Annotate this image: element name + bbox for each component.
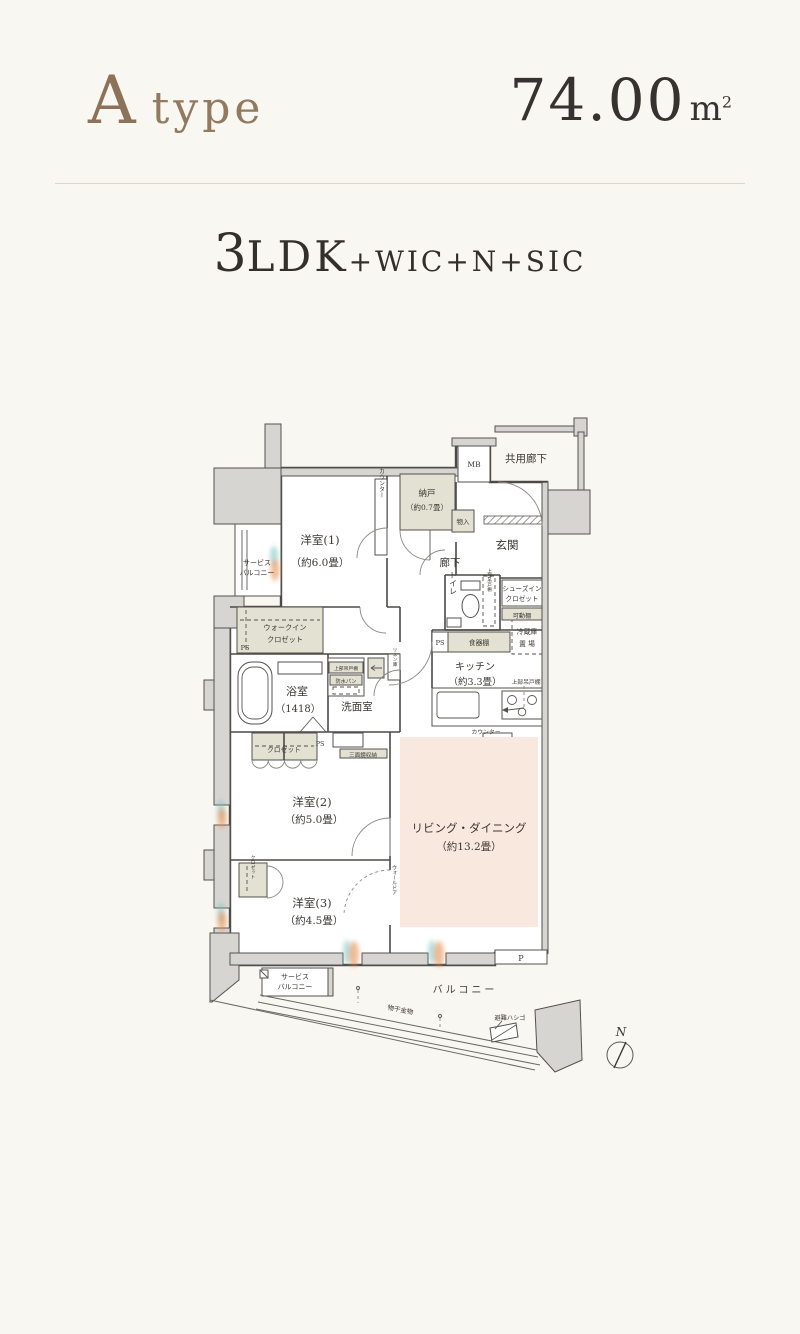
label-upper-cabinet-kitchen: 上部吊戸棚 [512, 678, 541, 686]
label-storage-room: 納戸 [418, 488, 435, 499]
label-living-dining-size: （約13.2畳） [436, 840, 501, 853]
label-closet-bedroom2: クロゼット [267, 745, 301, 754]
label-dish-cabinet: 食器棚 [469, 638, 490, 647]
label-kitchen: キッチン [455, 661, 495, 673]
label-bathroom-size: （1418） [275, 703, 320, 715]
label-bedroom3-size: （約4.5畳） [285, 914, 344, 927]
label-ps-kitchen: PS [436, 639, 445, 647]
type-initial: A [88, 62, 138, 139]
layout-extras: +WIC+N+SIC [349, 245, 587, 278]
label-waterproof-pan: 防水パン [335, 677, 356, 685]
layout-number: 3 [214, 224, 247, 284]
label-kitchen-size: （約3.3畳） [448, 676, 501, 688]
toilet-tank [461, 581, 480, 590]
stove [502, 691, 542, 719]
label-sic-1: シューズイン [502, 584, 542, 593]
label-hallway: 廊下 [440, 556, 461, 569]
label-living-dining: リビング・ダイニング [412, 821, 527, 835]
label-sb-top-2: バルコニー [240, 569, 275, 577]
label-storage-room-size: （約0.7畳） [406, 502, 448, 512]
balcony-area [210, 950, 547, 1070]
floor-plan: N 共用廊下 MB 納戸 （約0.7畳） 物入 カウンター 洋室(1) （約6.… [150, 380, 670, 1120]
label-bedroom1-size: （約6.0畳） [291, 556, 350, 569]
label-bathroom: 浴室 [286, 684, 308, 698]
label-ps-left: PS [241, 644, 250, 652]
label-bedroom1: 洋室(1) [300, 533, 339, 547]
label-upper-cabinet-toilet: 上部吊戸棚 [487, 568, 492, 593]
layout-summary: 3LDK+WIC+N+SIC [0, 224, 800, 284]
label-mb: MB [467, 460, 481, 469]
compass: N [607, 1025, 633, 1068]
label-washroom: 洗面室 [341, 700, 373, 713]
north-label: N [615, 1025, 627, 1039]
entrance-threshold-hatch [484, 516, 542, 524]
label-bedroom2: 洋室(2) [292, 795, 331, 809]
label-fridge-2: 置 場 [519, 639, 535, 648]
label-common-corridor: 共用廊下 [505, 452, 547, 465]
label-fridge-1: 冷蔵庫 [517, 627, 538, 636]
divider [55, 183, 745, 184]
label-toilet: トイレ [449, 571, 458, 595]
label-movable-shelf: 可動棚 [513, 612, 532, 620]
label-sb-bottom-1: サービス [281, 972, 309, 981]
bath-counter [278, 662, 322, 674]
type-word: type [152, 83, 265, 134]
label-wic-2: クロゼット [267, 635, 303, 644]
label-ps-closet: PS [316, 740, 325, 748]
label-pillar: P [518, 954, 524, 963]
bathtub [238, 662, 272, 724]
label-bedroom3: 洋室(3) [292, 896, 331, 910]
layout-ldk: LDK [247, 232, 349, 281]
label-entrance: 玄関 [496, 538, 519, 552]
label-closet-small: 物入 [457, 517, 471, 526]
label-escape-ladder: 避難ハシゴ [495, 1014, 526, 1022]
label-sb-top-1: サービス [243, 558, 271, 567]
area-value: 74.00m2 [510, 66, 732, 134]
label-closet-bedroom3: クロゼット [250, 855, 255, 879]
label-sb-bottom-2: バルコニー [278, 983, 313, 991]
toilet-bowl [462, 595, 479, 618]
label-mirror-cabinet: 三面鏡収納 [349, 751, 377, 759]
page-title: Atype [88, 62, 264, 139]
label-counter-kitchen: カウンター [472, 728, 501, 736]
label-sic-2: クロゼット [506, 594, 539, 603]
label-wall-door: ウォールドア [391, 864, 397, 895]
area-unit: m2 [690, 89, 732, 129]
label-laundry-hardware: 物干金物 [387, 1003, 415, 1017]
label-balcony: バルコニー [433, 984, 498, 996]
label-bedroom2-size: （約5.0畳） [285, 813, 344, 826]
label-upper-cabinet-laundry: 上部吊戸棚 [334, 665, 358, 672]
label-wic-1: ウォークイン [263, 623, 306, 632]
toilet-shelf [447, 618, 461, 627]
label-linen: リネン庫 [392, 647, 397, 668]
label-counter-v: カウンター [378, 468, 385, 498]
